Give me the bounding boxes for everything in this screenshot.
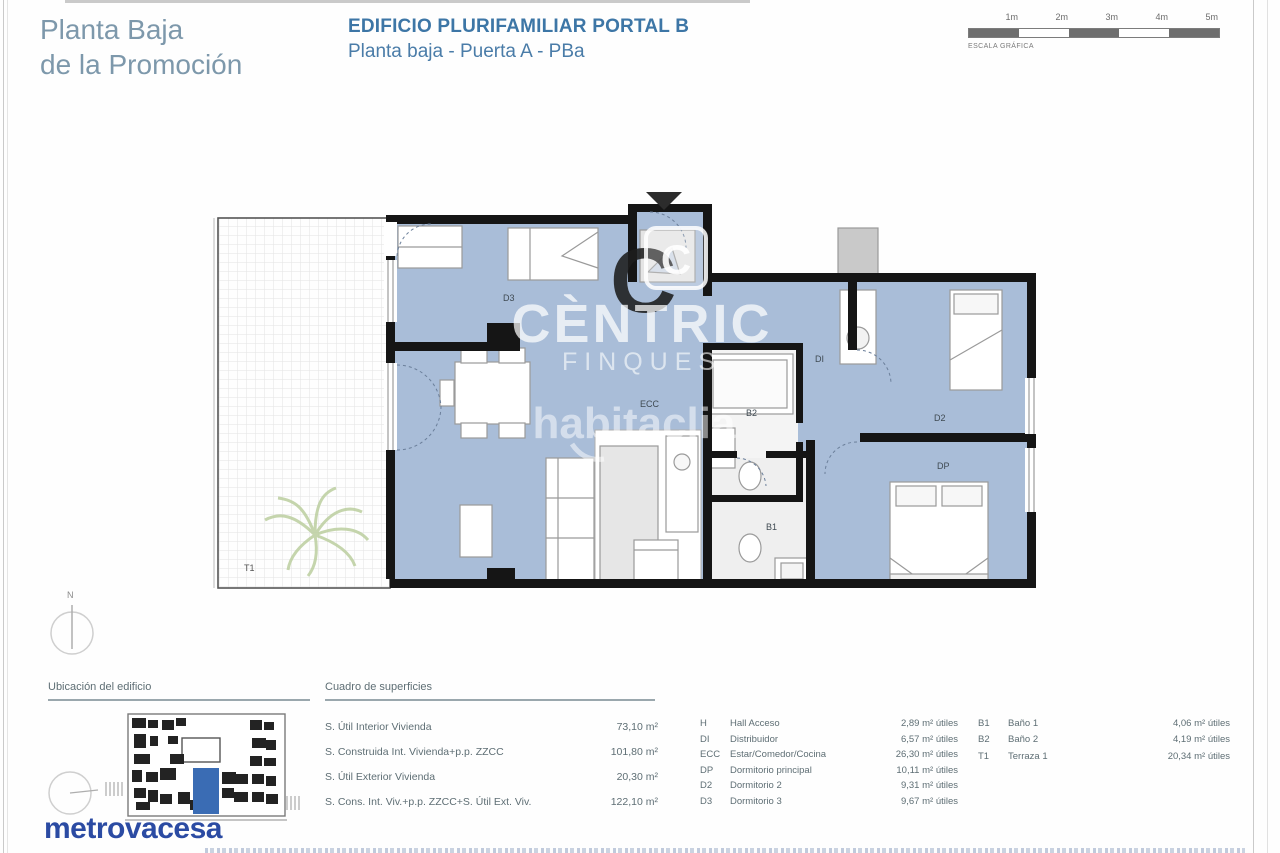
- room-code: H: [700, 718, 730, 729]
- legend-row: B1 Baño 1 4,06 m² útiles: [978, 716, 1230, 732]
- crosswalk-right: [287, 796, 299, 810]
- scale-label-1m: 1m: [1005, 12, 1018, 22]
- chair: [499, 423, 525, 438]
- room-name: Estar/Comedor/Cocina: [730, 749, 896, 760]
- chair: [440, 380, 454, 406]
- coffee-table: [460, 505, 492, 557]
- rooms-legend-main: H Hall Acceso 2,89 m² útiles DI Distribu…: [700, 716, 958, 809]
- room-label-t1: T1: [244, 563, 255, 573]
- surfaces-row: S. Cons. Int. Viv.+p.p. ZZCC+S. Útil Ext…: [325, 789, 658, 814]
- scale-labels: 1m 2m 3m 4m 5m: [968, 12, 1220, 25]
- legend-row: ECC Estar/Comedor/Cocina 26,30 m² útiles: [700, 747, 958, 763]
- centric-watermark: CÈNTRIC: [512, 294, 773, 354]
- page-title: Planta Baja de la Promoción: [40, 12, 242, 82]
- page-title-line1: Planta Baja: [40, 12, 242, 47]
- room-label-dp: DP: [937, 461, 950, 471]
- window: [384, 363, 397, 450]
- toilet-b2: [739, 462, 761, 490]
- clipped-disclaimer-text: [205, 848, 1245, 853]
- building-title: EDIFICIO PLURIFAMILIAR PORTAL B: [348, 16, 689, 38]
- room-label-b1: B1: [766, 522, 777, 532]
- surface-value: 101,80 m²: [611, 746, 658, 758]
- room-area: 20,34 m² útiles: [1168, 751, 1230, 762]
- legend-row: D3 Dormitorio 3 9,67 m² útiles: [700, 794, 958, 810]
- room-code: B2: [978, 734, 1008, 745]
- centric-logo-letter: C: [661, 236, 691, 283]
- scan-edge-top: [65, 0, 750, 3]
- room-label-b2: B2: [746, 408, 757, 418]
- kitchen-counter: [666, 436, 698, 532]
- room-name: Baño 2: [1008, 734, 1173, 745]
- room-code: D2: [700, 780, 730, 791]
- room-area: 4,19 m² útiles: [1173, 734, 1230, 745]
- surface-label: S. Cons. Int. Viv.+p.p. ZZCC+S. Útil Ext…: [325, 796, 531, 808]
- scale-label-3m: 3m: [1105, 12, 1118, 22]
- legend-row: B2 Baño 2 4,19 m² útiles: [978, 732, 1230, 748]
- dining-table: [455, 362, 530, 424]
- room-code: DI: [700, 734, 730, 745]
- surfaces-row: S. Útil Interior Vivienda 73,10 m²: [325, 714, 658, 739]
- utility-block: [838, 228, 878, 278]
- metrovacesa-logo: metrovacesa: [44, 812, 222, 846]
- legend-row: DP Dormitorio principal 10,11 m² útiles: [700, 763, 958, 779]
- scale-caption: ESCALA GRÁFICA: [968, 43, 1220, 50]
- location-rule: [48, 699, 310, 701]
- surfaces-table: S. Útil Interior Vivienda 73,10 m² S. Co…: [325, 714, 658, 814]
- room-code: ECC: [700, 749, 730, 760]
- map-compass-needle-icon: [70, 790, 98, 793]
- surface-value: 20,30 m²: [617, 771, 658, 783]
- compass-n-label: N: [67, 590, 74, 600]
- scale-label-4m: 4m: [1155, 12, 1168, 22]
- scan-edge-right: [1253, 0, 1254, 853]
- terrace-t1: T1: [214, 218, 390, 588]
- scan-edge-left: [3, 0, 4, 853]
- chair: [461, 423, 487, 438]
- room-name: Terraza 1: [1008, 751, 1168, 762]
- scale-label-2m: 2m: [1055, 12, 1068, 22]
- surface-value: 122,10 m²: [611, 796, 658, 808]
- surface-label: S. Construida Int. Vivienda+p.p. ZZCC: [325, 746, 504, 758]
- room-area: 26,30 m² útiles: [896, 749, 958, 760]
- scan-edge-right-2: [1267, 0, 1268, 853]
- room-area: 10,11 m² útiles: [896, 765, 958, 776]
- highlighted-unit: [193, 768, 219, 814]
- room-code: T1: [978, 751, 1008, 762]
- legend-row: DI Distribuidor 6,57 m² útiles: [700, 732, 958, 748]
- surface-value: 73,10 m²: [617, 721, 658, 733]
- room-area: 2,89 m² útiles: [901, 718, 958, 729]
- kitchen-sink: [674, 454, 690, 470]
- window: [1025, 448, 1038, 512]
- courtyard: [182, 738, 220, 762]
- bed-d3: [508, 228, 598, 280]
- sofa: [546, 458, 594, 580]
- rooms-legend-baths: B1 Baño 1 4,06 m² útiles B2 Baño 2 4,19 …: [978, 716, 1230, 765]
- scale-label-5m: 5m: [1205, 12, 1218, 22]
- room-label-di: DI: [815, 354, 824, 364]
- scale-seg-dark-2: [1069, 29, 1119, 37]
- page-title-line2: de la Promoción: [40, 47, 242, 82]
- finques-watermark: FINQUES: [562, 348, 722, 376]
- scale-bar: [968, 28, 1220, 38]
- scale-seg-dark-1: [969, 29, 1019, 37]
- surface-label: S. Útil Interior Vivienda: [325, 721, 432, 733]
- legend-row: D2 Dormitorio 2 9,31 m² útiles: [700, 778, 958, 794]
- floorplan-page: { "page": { "title_line1": "Planta Baja"…: [0, 0, 1280, 853]
- surfaces-row: S. Construida Int. Vivienda+p.p. ZZCC 10…: [325, 739, 658, 764]
- location-section-title: Ubicación del edificio: [48, 681, 151, 693]
- surface-label: S. Útil Exterior Vivienda: [325, 771, 435, 783]
- room-code: DP: [700, 765, 730, 776]
- toilet-b1: [739, 534, 761, 562]
- scan-edge-left-2: [7, 0, 8, 853]
- room-name: Dormitorio 3: [730, 796, 901, 807]
- building-location-map: [90, 708, 300, 826]
- room-name: Distribuidor: [730, 734, 901, 745]
- room-name: Dormitorio principal: [730, 765, 896, 776]
- floorplan-drawing: T1: [210, 190, 1046, 592]
- plan-subtitle: EDIFICIO PLURIFAMILIAR PORTAL B Planta b…: [348, 16, 689, 63]
- surfaces-row: S. Útil Exterior Vivienda 20,30 m²: [325, 764, 658, 789]
- surfaces-title: Cuadro de superficies: [325, 681, 432, 693]
- room-name: Dormitorio 2: [730, 780, 901, 791]
- graphic-scale: 1m 2m 3m 4m 5m ESCALA GRÁFICA: [968, 12, 1220, 50]
- room-area: 4,06 m² útiles: [1173, 718, 1230, 729]
- legend-row: H Hall Acceso 2,89 m² útiles: [700, 716, 958, 732]
- oven: [634, 540, 678, 580]
- room-name: Baño 1: [1008, 718, 1173, 729]
- room-area: 9,31 m² útiles: [901, 780, 958, 791]
- room-code: B1: [978, 718, 1008, 729]
- room-code: D3: [700, 796, 730, 807]
- window: [1025, 378, 1038, 434]
- surfaces-rule: [325, 699, 655, 701]
- window: [384, 260, 397, 322]
- room-area: 9,67 m² útiles: [901, 796, 958, 807]
- unit-title: Planta baja - Puerta A - PBa: [348, 41, 689, 63]
- room-name: Hall Acceso: [730, 718, 901, 729]
- scale-seg-dark-3: [1169, 29, 1219, 37]
- room-area: 6,57 m² útiles: [901, 734, 958, 745]
- compass: N: [40, 585, 110, 665]
- room-label-d2: D2: [934, 413, 946, 423]
- door-gap: [384, 222, 397, 256]
- habitaclia-watermark: habitaclia: [533, 399, 736, 448]
- legend-row: T1 Terraza 1 20,34 m² útiles: [978, 747, 1230, 765]
